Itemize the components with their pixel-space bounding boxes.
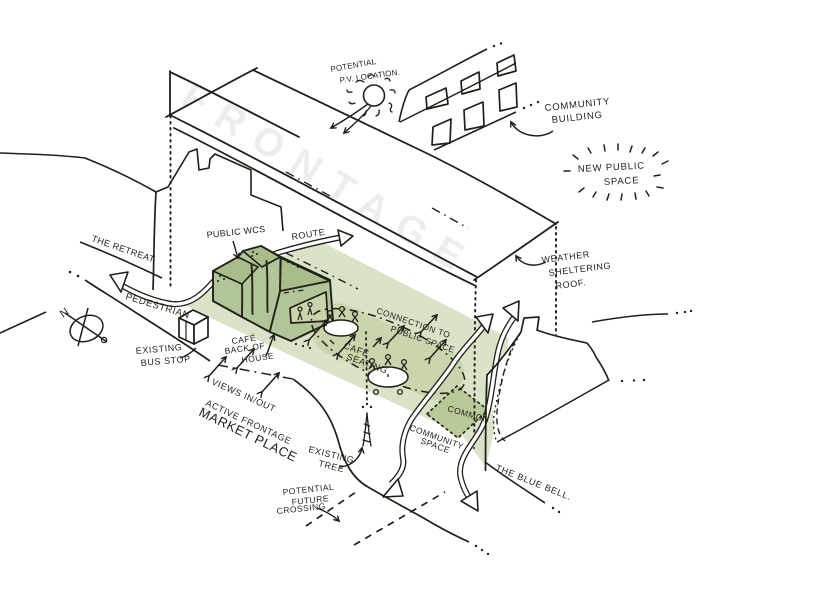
svg-text:SPACE: SPACE (604, 175, 640, 188)
